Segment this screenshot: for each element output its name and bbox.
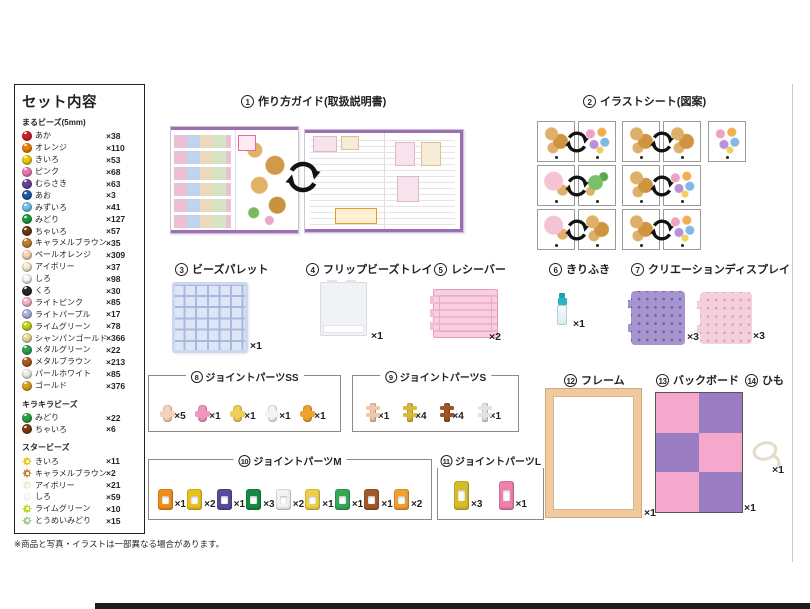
- bead-count: ×17: [106, 309, 136, 319]
- joint-part: ×1: [217, 489, 245, 510]
- bead-swatch: [22, 369, 32, 379]
- joint-part: ×1: [499, 481, 527, 510]
- item-number-badge: 12: [564, 374, 577, 387]
- bead-swatch: [22, 286, 32, 296]
- bead-name: しろ: [35, 273, 103, 284]
- instruction-figure: [395, 142, 415, 166]
- backboard: [655, 392, 743, 513]
- item-number-badge: 3: [175, 263, 188, 276]
- bead-count: ×98: [106, 274, 136, 284]
- item-label: きりふき: [566, 261, 610, 277]
- bead-count: ×10: [106, 504, 136, 514]
- bead-swatch: [22, 309, 32, 319]
- bead-name: メタルグリーン: [35, 344, 103, 355]
- bead-count: ×85: [106, 369, 136, 379]
- backboard-cell: [656, 472, 699, 512]
- bead-name: みずいろ: [35, 202, 103, 213]
- joint-count: ×1: [209, 412, 220, 422]
- flip-arrows-icon: [563, 172, 590, 199]
- display-pink-count: ×3: [753, 330, 765, 342]
- bead-name: みどり: [35, 412, 103, 423]
- instruction-figure: [421, 142, 441, 166]
- photo-mosaic: [174, 133, 231, 228]
- item-header-spray: 6 きりふき: [549, 261, 610, 277]
- guide-spread-back: [304, 129, 464, 233]
- joint-count: ×1: [352, 500, 363, 510]
- bead-count: ×22: [106, 345, 136, 355]
- bead-swatch: [22, 413, 32, 423]
- joint-count: ×1: [234, 500, 245, 510]
- bead-count: ×309: [106, 250, 136, 260]
- item-header-display: 7 クリエーションディスプレイ: [631, 261, 790, 277]
- box-content: ×1 ×4 ×4 ×1: [353, 376, 518, 431]
- bead-swatch: [22, 179, 32, 189]
- item-label: イラストシート(図案): [600, 93, 706, 109]
- page-edge: [460, 130, 463, 232]
- bead-name: みどり: [35, 214, 103, 225]
- backboard-cell: [699, 472, 742, 512]
- bead-row: みずいろ×41: [22, 201, 136, 213]
- bead-count: ×21: [106, 480, 136, 490]
- flip-arrows-icon: [648, 172, 675, 199]
- star-bead-swatch: [22, 504, 32, 514]
- item-number-badge: 13: [656, 374, 669, 387]
- joint-part: ×1: [370, 403, 389, 422]
- sheet-pair: [537, 209, 616, 250]
- bead-row: むらさき×63: [22, 178, 136, 190]
- spray-count: ×1: [573, 318, 585, 330]
- joint-part: ×1: [364, 489, 392, 510]
- joint-s-icon: [482, 403, 488, 422]
- panel-title: セット内容: [22, 91, 136, 112]
- string-count: ×1: [772, 464, 784, 476]
- bead-row: ライムグリーン×10: [22, 503, 136, 515]
- joint-part: ×2: [394, 489, 422, 510]
- bead-count: ×30: [106, 286, 136, 296]
- star-bead-swatch: [22, 480, 32, 490]
- sheet-pair: [622, 165, 701, 206]
- joint-count: ×1: [381, 500, 392, 510]
- flip-arrows-icon: [648, 216, 675, 243]
- bead-row: ゴールド×376: [22, 380, 136, 392]
- bead-swatch: [22, 155, 32, 165]
- bead-name: パールホワイト: [35, 368, 103, 379]
- bead-swatch: [22, 214, 32, 224]
- sheet-pair: [537, 121, 616, 162]
- joint-part: ×1: [198, 405, 220, 422]
- joint-m-icon: [305, 489, 320, 510]
- joint-parts-m-box: 10 ジョイントパーツM ×1 ×2 ×1 ×3 ×2 ×1 ×1 ×1 ×2: [148, 459, 432, 520]
- bead-palette: [172, 282, 248, 353]
- creation-display-purple: [631, 291, 685, 345]
- joint-part: ×1: [305, 489, 333, 510]
- item-header-frame: 12 フレーム: [564, 372, 625, 388]
- bead-name: むらさき: [35, 178, 103, 189]
- bead-swatch: [22, 202, 32, 212]
- bead-name: ライトピンク: [35, 297, 103, 308]
- creation-display-pink: [700, 292, 752, 344]
- item-number-badge: 14: [745, 374, 758, 387]
- bead-row: シャンパンゴールド×366: [22, 332, 136, 344]
- joint-part: ×1: [268, 405, 290, 422]
- joint-part: ×1: [482, 403, 501, 422]
- bead-swatch: [22, 190, 32, 200]
- flip-beads-tray: [320, 282, 367, 336]
- joint-count: ×2: [411, 500, 422, 510]
- item-number-badge: 9: [385, 371, 397, 383]
- bead-count: ×376: [106, 381, 136, 391]
- backboard-cell: [699, 433, 742, 473]
- bead-count: ×22: [106, 413, 136, 423]
- bead-name: ちゃいろ: [35, 226, 103, 237]
- joint-parts-l-box: 11 ジョイントパーツL ×3 ×1: [437, 459, 544, 520]
- bead-count: ×59: [106, 492, 136, 502]
- bead-count: ×53: [106, 155, 136, 165]
- bead-count: ×2: [106, 468, 136, 478]
- joint-ss-icon: [303, 405, 312, 422]
- bead-swatch: [22, 424, 32, 434]
- item-number-badge: 4: [306, 263, 319, 276]
- joint-part: ×2: [187, 489, 215, 510]
- bead-row: メタルグリーン×22: [22, 344, 136, 356]
- joint-s-icon: [444, 403, 450, 422]
- joint-count: ×1: [322, 500, 333, 510]
- joint-ss-icon: [163, 405, 172, 422]
- illustration-sheet: [708, 121, 746, 162]
- joint-count: ×1: [244, 412, 255, 422]
- sheet-pair: [622, 121, 701, 162]
- sheet-pair: [537, 165, 616, 206]
- sheet-pair: [622, 209, 701, 250]
- section-heading-star-beads: スタービーズ: [22, 442, 136, 453]
- bead-count: ×63: [106, 179, 136, 189]
- bead-row: ピンク×68: [22, 166, 136, 178]
- page-edge: [305, 229, 463, 232]
- bead-swatch: [22, 345, 32, 355]
- bead-name: あか: [35, 130, 103, 141]
- bead-row: ライトパープル×17: [22, 308, 136, 320]
- joint-part: ×1: [335, 489, 363, 510]
- joint-part: ×3: [454, 481, 482, 510]
- bead-name: アイボリー: [35, 261, 103, 272]
- item-label: フリップビーズトレイ: [323, 261, 432, 277]
- bead-row: ライトピンク×85: [22, 296, 136, 308]
- item-label: フレーム: [581, 372, 625, 388]
- joint-part: ×2: [276, 489, 304, 510]
- receiver-count: ×2: [489, 331, 501, 343]
- bead-name: ゴールド: [35, 380, 103, 391]
- bead-row: しろ×98: [22, 273, 136, 285]
- flip-arrows-icon: [563, 216, 590, 243]
- bead-name: きいろ: [35, 154, 103, 165]
- bead-name: シャンパンゴールド: [35, 333, 103, 344]
- bead-name: メタルブラウン: [35, 356, 103, 367]
- item-header-string: 14 ひも: [745, 372, 784, 388]
- item-label: ひも: [762, 372, 784, 388]
- bead-row: きいろ×11: [22, 455, 136, 467]
- bead-swatch: [22, 226, 32, 236]
- bead-name: オレンジ: [35, 142, 103, 153]
- bead-row: ペールオレンジ×309: [22, 249, 136, 261]
- bead-row: キャラメルブラウン×2: [22, 467, 136, 479]
- joint-m-icon: [158, 489, 173, 510]
- bead-name: しろ: [35, 491, 103, 502]
- joint-count: ×4: [452, 412, 463, 422]
- bead-count: ×35: [106, 238, 136, 248]
- item-header-backboard: 13 バックボード: [656, 372, 739, 388]
- item-number-badge: 8: [190, 371, 202, 383]
- item-label: バックボード: [673, 372, 739, 388]
- bead-swatch: [22, 167, 32, 177]
- bead-swatch: [22, 321, 32, 331]
- spray-trigger: [558, 298, 567, 305]
- item-header-receiver: 5 レシーバー: [434, 261, 506, 277]
- instruction-figure: [397, 176, 419, 202]
- bead-name: あお: [35, 190, 103, 201]
- joint-count: ×1: [175, 500, 186, 510]
- item-header-guide: 1 作り方ガイド(取扱説明書): [241, 93, 386, 109]
- bead-row: キャラメルブラウン×35: [22, 237, 136, 249]
- joint-m-icon: [364, 489, 379, 510]
- bead-count: ×110: [106, 143, 136, 153]
- item-header-flip-tray: 4 フリップビーズトレイ: [306, 261, 432, 277]
- bead-swatch: [22, 381, 32, 391]
- joint-count: ×1: [314, 412, 325, 422]
- spray-bottle: [556, 293, 568, 327]
- flip-arrows-icon: [648, 128, 675, 155]
- joint-m-icon: [276, 489, 291, 510]
- joint-m-icon: [187, 489, 202, 510]
- joint-part: ×1: [158, 489, 186, 510]
- flip-arrows-icon: [283, 157, 323, 197]
- backboard-cell: [699, 393, 742, 433]
- section-heading-glitter-beads: キラキラビーズ: [22, 399, 136, 410]
- page-edge: [171, 230, 298, 233]
- joint-part: ×1: [233, 405, 255, 422]
- bead-name: とうめいみどり: [35, 515, 103, 526]
- instruction-figure: [341, 136, 359, 150]
- joint-ss-icon: [233, 405, 242, 422]
- item-number-badge: 7: [631, 263, 644, 276]
- bead-name: くろ: [35, 285, 103, 296]
- bead-row: アイボリー×37: [22, 261, 136, 273]
- star-bead-swatch: [22, 516, 32, 526]
- bead-row: アイボリー×21: [22, 479, 136, 491]
- disclaimer-note: ※商品と写真・イラストは一部異なる場合があります。: [14, 538, 224, 550]
- item-number-badge: 2: [583, 95, 596, 108]
- item-label: ジョイントパーツL: [455, 453, 541, 468]
- bead-row: パールホワイト×85: [22, 368, 136, 380]
- joint-count: ×5: [174, 412, 185, 422]
- star-bead-swatch: [22, 468, 32, 478]
- joint-m-icon: [394, 489, 409, 510]
- joint-count: ×3: [471, 500, 482, 510]
- item-number-badge: 6: [549, 263, 562, 276]
- item-label: 作り方ガイド(取扱説明書): [258, 93, 386, 109]
- bead-swatch: [22, 143, 32, 153]
- joint-count: ×2: [204, 500, 215, 510]
- bead-count: ×11: [106, 456, 136, 466]
- guide-spread-front: [170, 126, 299, 234]
- spray-body: [557, 305, 567, 325]
- bead-swatch: [22, 238, 32, 248]
- bead-row: くろ×30: [22, 285, 136, 297]
- bead-swatch: [22, 297, 32, 307]
- joint-part: ×4: [407, 403, 426, 422]
- backboard-cell: [656, 433, 699, 473]
- item-number-badge: 10: [238, 455, 250, 467]
- item-label: ジョイントパーツM: [253, 453, 341, 468]
- bead-count: ×78: [106, 321, 136, 331]
- joint-parts-ss-box: 8 ジョイントパーツSS ×5 ×1 ×1 ×1 ×1: [148, 375, 341, 432]
- box-title: 8 ジョイントパーツSS: [185, 369, 303, 384]
- bead-row: しろ×59: [22, 491, 136, 503]
- bead-count: ×37: [106, 262, 136, 272]
- joint-count: ×2: [293, 500, 304, 510]
- bead-name: アイボリー: [35, 480, 103, 491]
- bead-name: ちゃいろ: [35, 424, 103, 435]
- item-label: クリエーションディスプレイ: [648, 261, 790, 277]
- joint-m-icon: [246, 489, 261, 510]
- joint-parts-s-box: 9 ジョイントパーツS ×1 ×4 ×4 ×1: [352, 375, 519, 432]
- joint-count: ×1: [279, 412, 290, 422]
- joint-part: ×1: [303, 405, 325, 422]
- sheet-fold-line: [792, 84, 793, 562]
- bead-count: ×3: [106, 190, 136, 200]
- box-content: ×1 ×2 ×1 ×3 ×2 ×1 ×1 ×1 ×2: [149, 460, 431, 519]
- bead-swatch: [22, 357, 32, 367]
- bead-count: ×57: [106, 226, 136, 236]
- bead-count: ×6: [106, 424, 136, 434]
- joint-part: ×5: [163, 405, 185, 422]
- bead-count: ×366: [106, 333, 136, 343]
- bead-count: ×15: [106, 516, 136, 526]
- item-label: ジョイントパーツSS: [205, 369, 298, 384]
- joint-m-icon: [217, 489, 232, 510]
- backboard-cell: [656, 393, 699, 433]
- set-contents-panel: セット内容 まるビーズ(5mm) あか×38 オレンジ×110 きいろ×53 ピ…: [14, 84, 145, 534]
- bead-row: ちゃいろ×6: [22, 423, 136, 435]
- joint-count: ×3: [263, 500, 274, 510]
- bead-row: あか×38: [22, 130, 136, 142]
- bead-name: ライムグリーン: [35, 321, 103, 332]
- bead-count: ×85: [106, 297, 136, 307]
- bead-swatch: [22, 274, 32, 284]
- warning-box: [335, 208, 377, 224]
- bead-row: みどり×127: [22, 213, 136, 225]
- display-purple-count: ×3: [687, 331, 699, 343]
- bottom-bar: [95, 603, 810, 609]
- bead-name: ライトパープル: [35, 309, 103, 320]
- flip-tray-count: ×1: [371, 330, 383, 342]
- bead-row: きいろ×53: [22, 154, 136, 166]
- backboard-count: ×1: [744, 502, 756, 514]
- bead-count: ×41: [106, 202, 136, 212]
- star-bead-swatch: [22, 456, 32, 466]
- bead-count: ×68: [106, 167, 136, 177]
- star-bead-swatch: [22, 492, 32, 502]
- item-header-sheets: 2 イラストシート(図案): [583, 93, 706, 109]
- bead-row: メタルブラウン×213: [22, 356, 136, 368]
- page-fold: [235, 130, 236, 230]
- joint-s-icon: [370, 403, 376, 422]
- bead-row: ちゃいろ×57: [22, 225, 136, 237]
- bead-row: ライムグリーン×78: [22, 320, 136, 332]
- bead-count: ×213: [106, 357, 136, 367]
- bead-name: ペールオレンジ: [35, 249, 103, 260]
- joint-m-icon: [335, 489, 350, 510]
- item-number-badge: 5: [434, 263, 447, 276]
- joint-count: ×1: [516, 500, 527, 510]
- display-frame: [546, 389, 641, 517]
- bead-count: ×127: [106, 214, 136, 224]
- box-title: 9 ジョイントパーツS: [380, 369, 491, 384]
- item-label: レシーバー: [451, 261, 506, 277]
- bead-name: キャラメルブラウン: [35, 468, 103, 479]
- bead-row: みどり×22: [22, 412, 136, 424]
- flip-arrows-icon: [563, 128, 590, 155]
- item-header-palette: 3 ビーズパレット: [175, 261, 268, 277]
- bead-name: きいろ: [35, 456, 103, 467]
- instruction-figure: [313, 136, 337, 152]
- joint-ss-icon: [198, 405, 207, 422]
- bead-name: キャラメルブラウン: [35, 237, 103, 248]
- joint-l-icon: [499, 481, 514, 510]
- bead-swatch: [22, 131, 32, 141]
- joint-part: ×4: [444, 403, 463, 422]
- joint-part: ×3: [246, 489, 274, 510]
- box-title: 11 ジョイントパーツL: [435, 453, 546, 468]
- joint-ss-icon: [268, 405, 277, 422]
- joint-s-icon: [407, 403, 413, 422]
- item-number-badge: 1: [241, 95, 254, 108]
- palette-count: ×1: [250, 340, 262, 352]
- bead-swatch: [22, 262, 32, 272]
- box-title: 10 ジョイントパーツM: [233, 453, 346, 468]
- callout-box: [238, 135, 256, 151]
- bead-row: あお×3: [22, 189, 136, 201]
- item-number-badge: 11: [440, 455, 452, 467]
- bead-row: オレンジ×110: [22, 142, 136, 154]
- section-heading-round-beads: まるビーズ(5mm): [22, 117, 136, 128]
- joint-l-icon: [454, 481, 469, 510]
- bead-name: ライムグリーン: [35, 503, 103, 514]
- box-content: ×3 ×1: [438, 460, 543, 519]
- bead-swatch: [22, 333, 32, 343]
- bead-row: とうめいみどり×15: [22, 515, 136, 527]
- bead-count: ×38: [106, 131, 136, 141]
- box-content: ×5 ×1 ×1 ×1 ×1: [149, 376, 340, 431]
- bead-name: ピンク: [35, 166, 103, 177]
- item-label: ジョイントパーツS: [400, 369, 486, 384]
- bead-swatch: [22, 250, 32, 260]
- item-label: ビーズパレット: [192, 261, 268, 277]
